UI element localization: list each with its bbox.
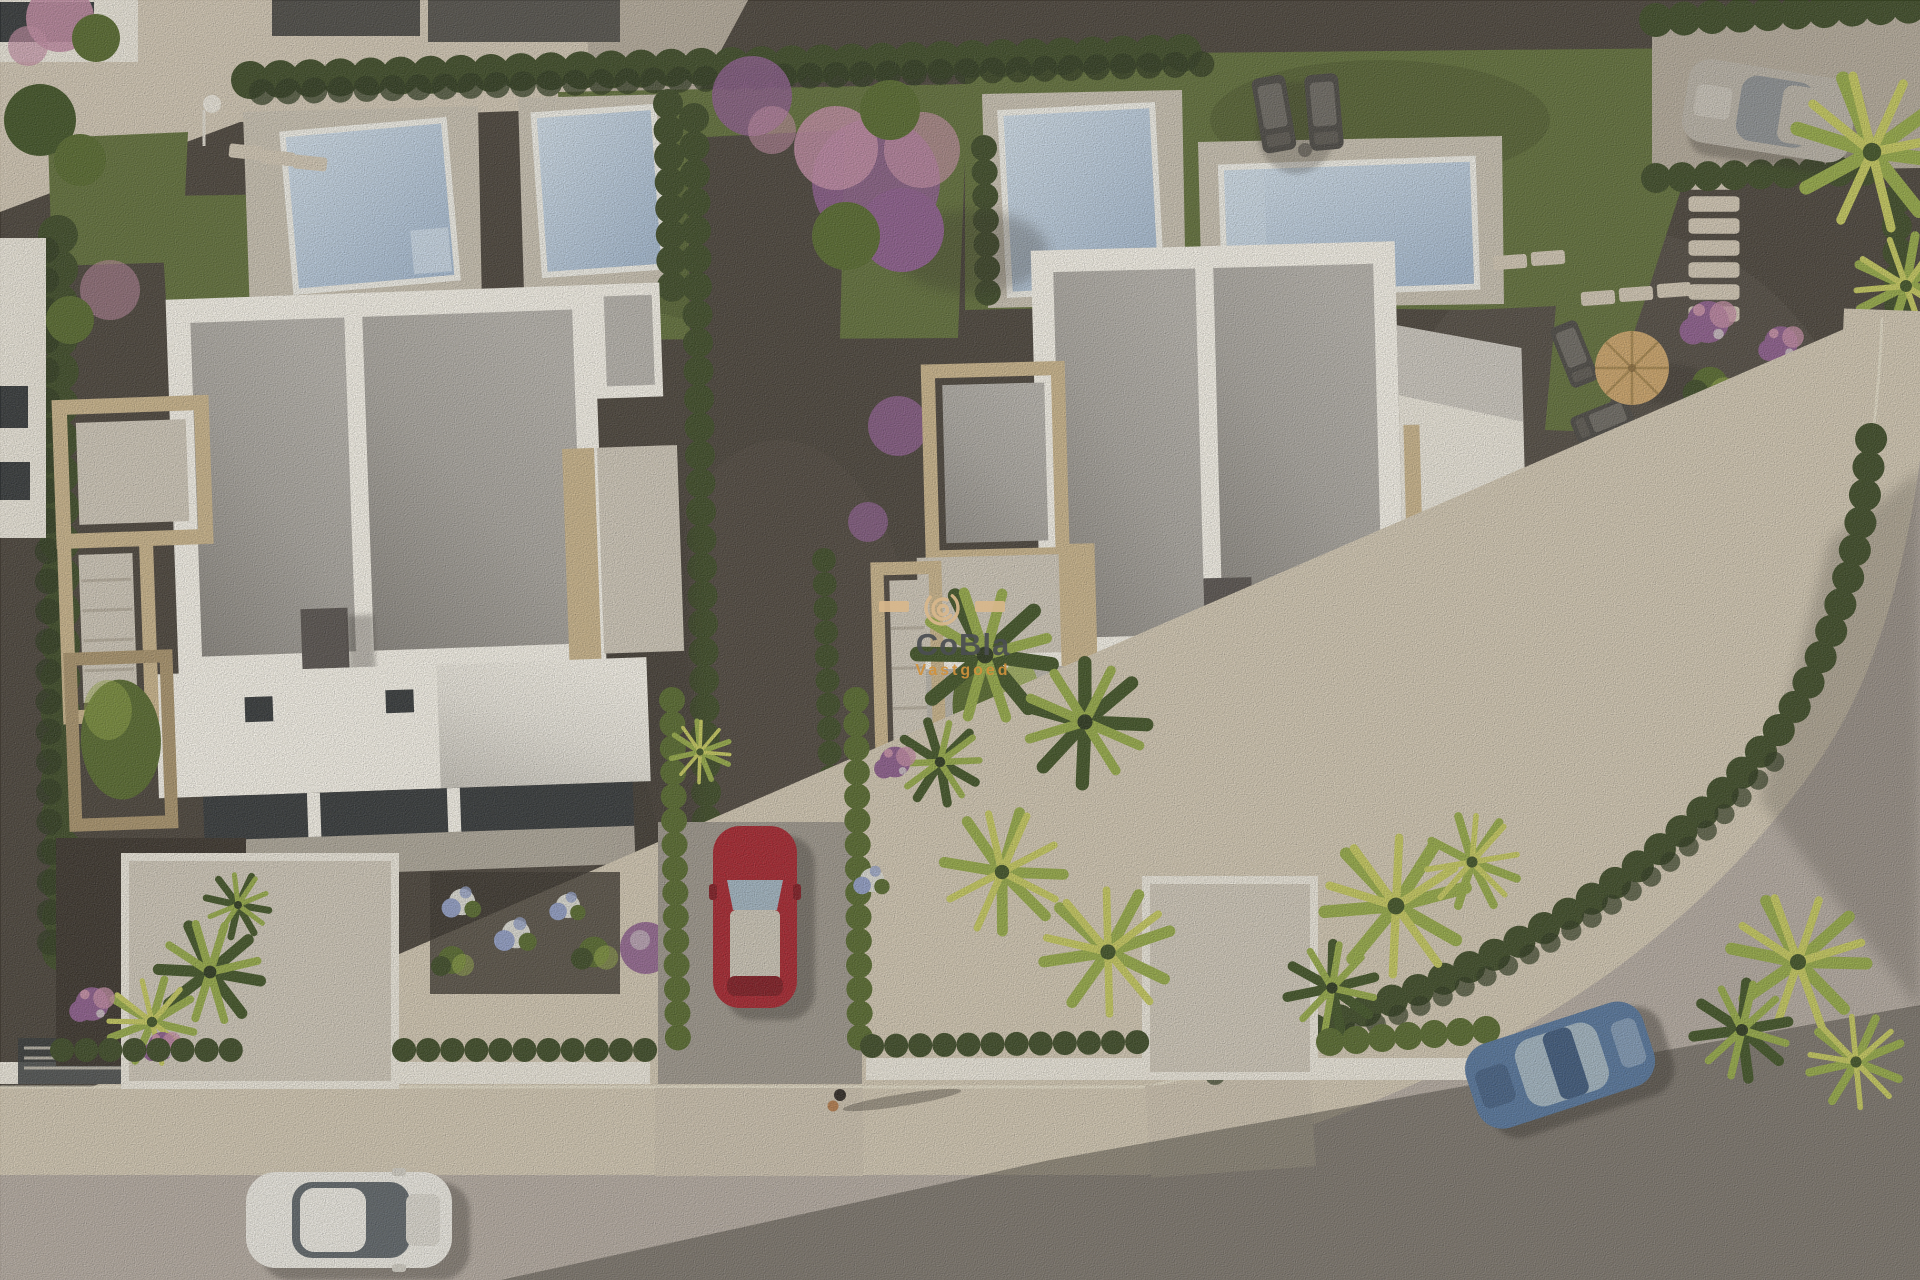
aerial-render: CoBla Vastgoed xyxy=(0,0,1920,1280)
grain-overlay xyxy=(1,1,1920,1280)
render-scene xyxy=(0,0,1920,1280)
